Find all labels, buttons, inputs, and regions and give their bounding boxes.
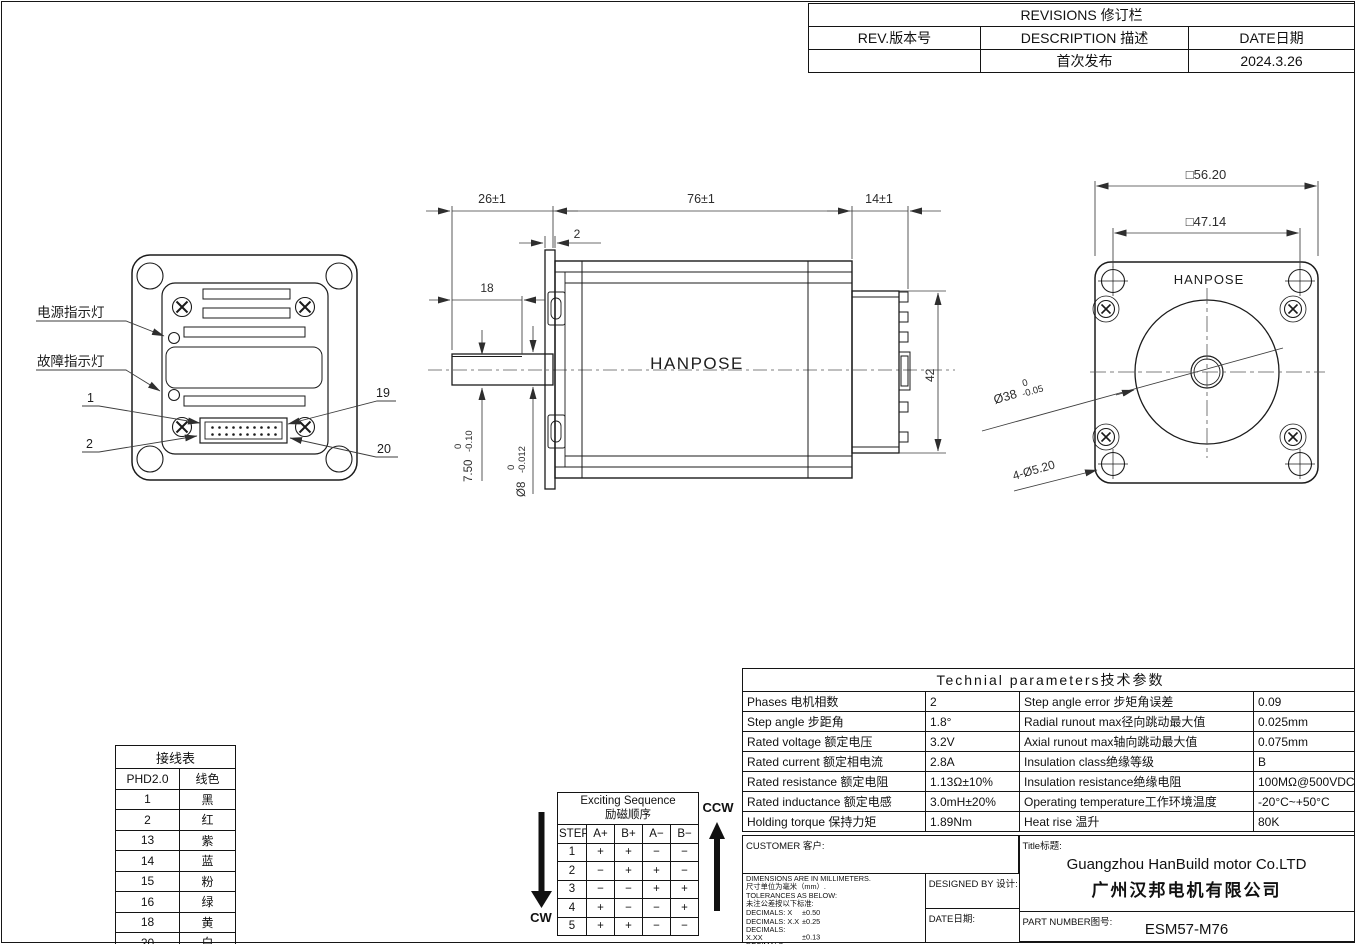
customer-box: CUSTOMER 客户: bbox=[742, 835, 1019, 874]
wire-color: 黑 bbox=[180, 789, 236, 810]
phase-cell: + bbox=[615, 862, 643, 881]
param-value: 2.8A bbox=[926, 752, 1020, 772]
part-number-box: PART NUMBER图号: ESM57-M76 bbox=[1019, 911, 1355, 943]
wire-color: 绿 bbox=[180, 892, 236, 913]
col-header: B− bbox=[671, 825, 699, 844]
phase-cell: + bbox=[615, 843, 643, 862]
table-row: Rated voltage 额定电压3.2V Axial runout max轴… bbox=[743, 732, 1355, 752]
table-row: 2红 bbox=[116, 810, 236, 831]
param-value: B bbox=[1254, 752, 1355, 772]
param-value: 80K bbox=[1254, 812, 1355, 832]
param-label: Rated current 额定相电流 bbox=[743, 752, 926, 772]
table-row: 13紫 bbox=[116, 830, 236, 851]
pin-number: 15 bbox=[116, 871, 180, 892]
param-label: Holding torque 保持力矩 bbox=[743, 812, 926, 832]
phase-cell: − bbox=[671, 917, 699, 936]
tol-label: DECIMALS: X.X bbox=[746, 918, 802, 926]
step-cell: 4 bbox=[558, 899, 587, 918]
param-label: Axial runout max轴向跳动最大值 bbox=[1020, 732, 1254, 752]
date-label: DATE日期: bbox=[926, 909, 1019, 925]
pin-number: 18 bbox=[116, 912, 180, 933]
title-label: Title标题: bbox=[1020, 836, 1354, 852]
param-value: 0.075mm bbox=[1254, 732, 1355, 752]
tol-label: DECIMALS: X bbox=[746, 909, 802, 917]
exciting-title-cn: 励磁顺序 bbox=[605, 809, 651, 821]
table-row: Rated inductance 额定电感3.0mH±20% Operating… bbox=[743, 792, 1355, 812]
revisions-col-desc: DESCRIPTION 描述 bbox=[981, 27, 1189, 50]
wiring-title: 接线表 bbox=[116, 746, 236, 769]
table-row: Rated resistance 额定电阻1.13Ω±10% Insulatio… bbox=[743, 772, 1355, 792]
phase-cell: − bbox=[643, 899, 671, 918]
step-cell: 5 bbox=[558, 917, 587, 936]
step-cell: 2 bbox=[558, 862, 587, 881]
param-label: Rated voltage 额定电压 bbox=[743, 732, 926, 752]
wire-color: 黄 bbox=[180, 912, 236, 933]
tol-value: ±0.25 bbox=[802, 917, 820, 926]
wiring-col-pin: PHD2.0 bbox=[116, 769, 180, 790]
table-row: STEP A+ B+ A− B− bbox=[558, 825, 699, 844]
phase-cell: − bbox=[671, 862, 699, 881]
pin-number: 20 bbox=[116, 933, 180, 944]
phase-cell: + bbox=[643, 880, 671, 899]
revisions-col-rev: REV.版本号 bbox=[809, 27, 981, 50]
phase-cell: − bbox=[615, 880, 643, 899]
technical-parameters-table: Technial parameters技术参数 Phases 电机相数2 Ste… bbox=[742, 668, 1355, 832]
param-label: Heat rise 温升 bbox=[1020, 812, 1254, 832]
exciting-sequence-table: Exciting Sequence励磁顺序 STEP A+ B+ A− B− 1… bbox=[557, 792, 699, 936]
part-number-label: PART NUMBER图号: bbox=[1020, 912, 1113, 928]
customer-label: CUSTOMER 客户: bbox=[743, 836, 1018, 852]
table-row: Holding torque 保持力矩1.89Nm Heat rise 温升80… bbox=[743, 812, 1355, 832]
pin-number: 1 bbox=[116, 789, 180, 810]
phase-cell: − bbox=[587, 862, 615, 881]
phase-cell: + bbox=[671, 880, 699, 899]
table-row: 4+−−+ bbox=[558, 899, 699, 918]
phase-cell: + bbox=[643, 862, 671, 881]
param-label: Operating temperature工作环境温度 bbox=[1020, 792, 1254, 812]
table-row: 15粉 bbox=[116, 871, 236, 892]
step-cell: 3 bbox=[558, 880, 587, 899]
table-row: 14蓝 bbox=[116, 851, 236, 872]
title-box: Title标题: Guangzhou HanBuild motor Co.LTD… bbox=[1019, 835, 1355, 912]
wiring-col-color: 线色 bbox=[180, 769, 236, 790]
param-value: 100MΩ@500VDC bbox=[1254, 772, 1355, 792]
param-label: Insulation resistance绝缘电阻 bbox=[1020, 772, 1254, 792]
exciting-title: Exciting Sequence励磁顺序 bbox=[558, 793, 699, 825]
pin-number: 13 bbox=[116, 830, 180, 851]
pin-number: 14 bbox=[116, 851, 180, 872]
company-name-cn: 广州汉邦电机有限公司 bbox=[1020, 876, 1354, 901]
tol-value: ±0.13 bbox=[802, 933, 820, 942]
pin-number: 16 bbox=[116, 892, 180, 913]
param-value: -20°C~+50°C bbox=[1254, 792, 1355, 812]
tol-label: DECIMALS: X.XX bbox=[746, 926, 802, 941]
table-row: 16绿 bbox=[116, 892, 236, 913]
param-value: 1.8° bbox=[926, 712, 1020, 732]
param-value: 1.13Ω±10% bbox=[926, 772, 1020, 792]
revisions-table: REVISIONS 修订栏 REV.版本号 DESCRIPTION 描述 DAT… bbox=[808, 3, 1355, 73]
param-label: Radial runout max径向跳动最大值 bbox=[1020, 712, 1254, 732]
param-value: 3.0mH±20% bbox=[926, 792, 1020, 812]
table-row: 1++−− bbox=[558, 843, 699, 862]
phase-cell: + bbox=[671, 899, 699, 918]
date-box: DATE日期: bbox=[925, 908, 1020, 943]
param-label: Step angle error 步矩角误差 bbox=[1020, 692, 1254, 712]
col-header: A+ bbox=[587, 825, 615, 844]
phase-cell: − bbox=[615, 899, 643, 918]
param-value: 2 bbox=[926, 692, 1020, 712]
table-row: 3−−++ bbox=[558, 880, 699, 899]
step-cell: 1 bbox=[558, 843, 587, 862]
param-label: Insulation class绝缘等级 bbox=[1020, 752, 1254, 772]
table-row: 2−++− bbox=[558, 862, 699, 881]
param-value: 3.2V bbox=[926, 732, 1020, 752]
table-row: 18黄 bbox=[116, 912, 236, 933]
param-label: Step angle 步距角 bbox=[743, 712, 926, 732]
phase-cell: − bbox=[643, 917, 671, 936]
param-value: 1.89Nm bbox=[926, 812, 1020, 832]
table-row: 1黑 bbox=[116, 789, 236, 810]
revision-rev-value bbox=[809, 50, 981, 73]
phase-cell: − bbox=[587, 880, 615, 899]
param-label: Phases 电机相数 bbox=[743, 692, 926, 712]
table-row: 5++−− bbox=[558, 917, 699, 936]
table-row: Rated current 额定相电流2.8A Insulation class… bbox=[743, 752, 1355, 772]
wire-color: 粉 bbox=[180, 871, 236, 892]
param-label: Rated inductance 额定电感 bbox=[743, 792, 926, 812]
phase-cell: + bbox=[587, 899, 615, 918]
param-label: Rated resistance 额定电阻 bbox=[743, 772, 926, 792]
revisions-col-date: DATE日期 bbox=[1189, 27, 1355, 50]
table-row: 20白 bbox=[116, 933, 236, 944]
designed-by-box: DESIGNED BY 设计: bbox=[925, 873, 1020, 909]
table-row: Phases 电机相数2 Step angle error 步矩角误差0.09 bbox=[743, 692, 1355, 712]
param-value: 0.09 bbox=[1254, 692, 1355, 712]
company-name-en: Guangzhou HanBuild motor Co.LTD bbox=[1020, 856, 1354, 873]
tech-title: Technial parameters技术参数 bbox=[743, 669, 1355, 692]
col-header: A− bbox=[643, 825, 671, 844]
drawing-sheet: 电源指示灯 故障指示灯 1 2 19 20 bbox=[0, 0, 1356, 944]
exciting-title-en: Exciting Sequence bbox=[580, 795, 675, 807]
wire-color: 蓝 bbox=[180, 851, 236, 872]
tolerance-line: DECIMALS: X.X±0.25 bbox=[743, 917, 925, 926]
phase-cell: + bbox=[587, 917, 615, 936]
param-value: 0.025mm bbox=[1254, 712, 1355, 732]
table-row: Step angle 步距角1.8° Radial runout max径向跳动… bbox=[743, 712, 1355, 732]
note-line: TOLERANCES AS BELOW: bbox=[743, 891, 925, 900]
note-line: 未注公差按以下标准: bbox=[743, 899, 925, 908]
tolerance-line: DECIMALS: X±0.50 bbox=[743, 908, 925, 917]
col-header: B+ bbox=[615, 825, 643, 844]
note-line: DIMENSIONS ARE IN MILLIMETERS. bbox=[743, 874, 925, 883]
designed-by-label: DESIGNED BY 设计: bbox=[926, 874, 1019, 890]
pin-number: 2 bbox=[116, 810, 180, 831]
phase-cell: − bbox=[671, 843, 699, 862]
col-header: STEP bbox=[558, 825, 587, 844]
phase-cell: + bbox=[587, 843, 615, 862]
revision-desc-value: 首次发布 bbox=[981, 50, 1189, 73]
revision-date-value: 2024.3.26 bbox=[1189, 50, 1355, 73]
revisions-title: REVISIONS 修订栏 bbox=[809, 4, 1355, 27]
note-line: 尺寸单位为毫米（mm）. bbox=[743, 882, 925, 891]
wire-color: 红 bbox=[180, 810, 236, 831]
wire-color: 白 bbox=[180, 933, 236, 944]
phase-cell: − bbox=[643, 843, 671, 862]
tolerance-line: DECIMALS: X.XX±0.13 bbox=[743, 925, 925, 941]
wiring-table: 接线表 PHD2.0 线色 1黑 2红 13紫 14蓝 15粉 16绿 18黄 … bbox=[115, 745, 236, 944]
phase-cell: + bbox=[615, 917, 643, 936]
tolerance-notes-box: DIMENSIONS ARE IN MILLIMETERS. 尺寸单位为毫米（m… bbox=[742, 873, 926, 943]
wire-color: 紫 bbox=[180, 830, 236, 851]
